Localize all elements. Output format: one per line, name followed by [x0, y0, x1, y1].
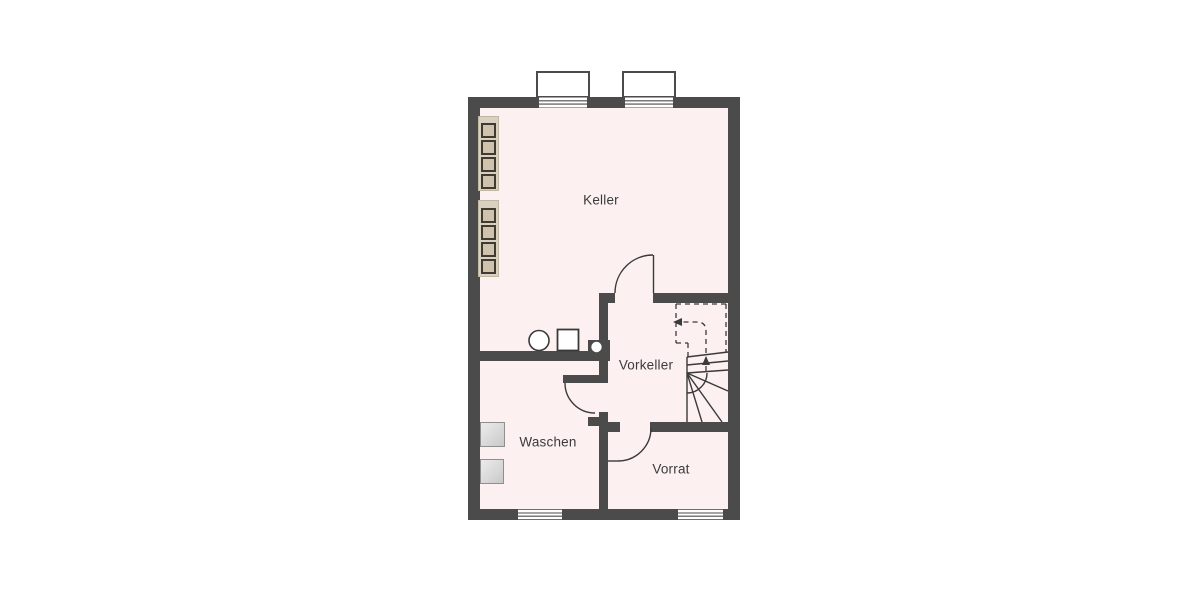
stairs-treads [687, 352, 728, 422]
appliance-box-1 [480, 422, 505, 447]
shelf-compartment [481, 208, 496, 223]
room-label-vorkeller: Vorkeller [619, 358, 673, 373]
floor-plan: Keller Vorkeller Waschen Vorrat [0, 0, 1200, 600]
room-label-vorrat: Vorrat [652, 462, 689, 477]
door-keller [615, 255, 654, 293]
circle-fixture-icon [529, 331, 549, 351]
appliance-box-2 [480, 459, 504, 484]
linework-overlay [0, 0, 1200, 600]
door-waschen [565, 383, 595, 413]
shelf-compartment [481, 140, 496, 155]
window-glazing-top-right [625, 98, 673, 108]
shelf-compartment [481, 242, 496, 257]
shelf-compartment [481, 123, 496, 138]
window-bottom-right [678, 510, 723, 519]
shelf-compartment [481, 259, 496, 274]
pipe-circle-icon [591, 342, 601, 352]
shelf-unit-1 [478, 116, 499, 191]
window-glazing-top-left [539, 98, 587, 108]
shelf-compartment [481, 174, 496, 189]
shelf-unit-2 [478, 200, 499, 277]
shelf-compartment [481, 225, 496, 240]
walkline-arrow-left [673, 318, 682, 326]
room-label-keller: Keller [583, 193, 619, 208]
door-vorrat [608, 428, 651, 461]
room-label-waschen: Waschen [519, 434, 576, 449]
stairs-upper-flight-dashed [673, 304, 726, 371]
shelf-compartment [481, 157, 496, 172]
window-bottom-left [518, 510, 562, 519]
square-fixture-icon [558, 330, 579, 351]
staircase [673, 304, 728, 422]
